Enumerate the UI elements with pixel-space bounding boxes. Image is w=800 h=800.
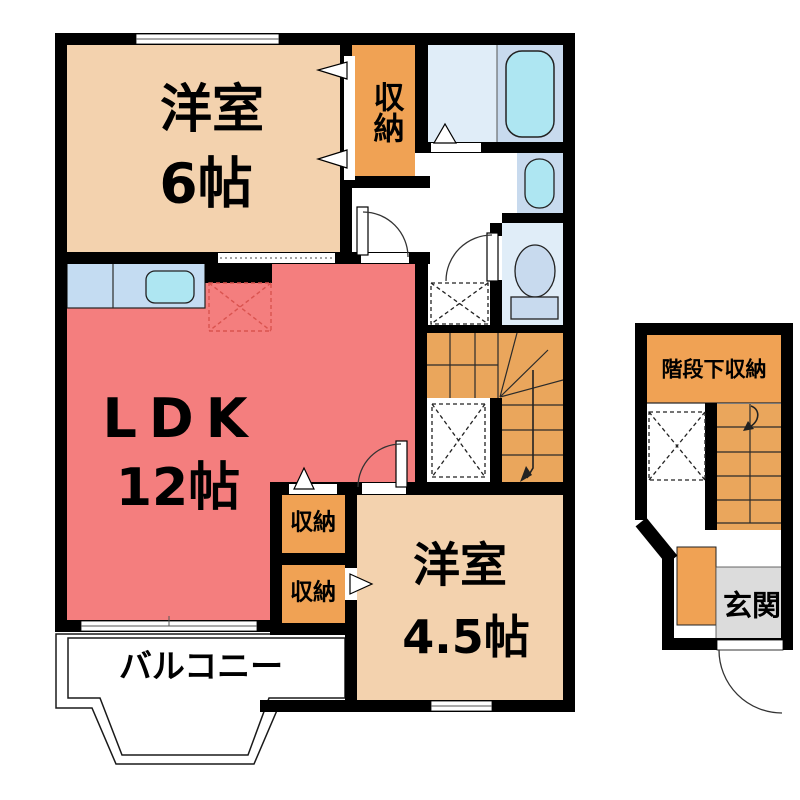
wall-segment [205, 264, 272, 283]
wall-segment [270, 623, 357, 635]
hall-ldk-door-leaf [357, 207, 368, 255]
wall-segment [781, 323, 793, 650]
toilet-door-swing-arc [446, 235, 492, 281]
wall-segment [55, 33, 67, 632]
toilet-door-leaf [487, 233, 498, 281]
wall-segment [260, 700, 575, 712]
label-entrance: 玄関 [723, 592, 781, 621]
label-western6-name: 洋室 [160, 84, 264, 136]
label-western45-name: 洋室 [413, 543, 507, 590]
entrance-door [717, 640, 783, 650]
washroom-door-opening [431, 143, 481, 152]
wall-segment [635, 323, 647, 520]
washroom-floor [428, 45, 497, 143]
wall-segment [415, 45, 428, 153]
toilet-bowl-icon [515, 245, 555, 297]
label-closet-b: 収納 [290, 582, 336, 605]
wall-segment [415, 264, 428, 333]
wall-segment [662, 552, 674, 650]
label-closet-a: 収納 [290, 512, 336, 535]
kitchen-sink-icon [146, 271, 194, 303]
wall-segment [55, 33, 575, 45]
floorplan-page: 洋室 6帖 収納 LDK 12帖 収納 収納 洋室 4.5帖 バルコニー 階段下… [0, 0, 800, 800]
label-closet-top: 収納 [370, 81, 401, 143]
wall-segment [415, 333, 427, 398]
hall-ldk-door-swing-arc [363, 212, 408, 257]
label-understairs-storage: 階段下収納 [662, 360, 767, 381]
label-western45-size: 4.5帖 [402, 614, 530, 660]
bathtub-icon [506, 51, 554, 137]
wall-segment [502, 213, 563, 223]
wall-segment [352, 176, 430, 188]
washbasin-icon [525, 159, 554, 208]
wall-segment [490, 398, 502, 482]
wall-segment [282, 553, 345, 565]
western6-floor [67, 45, 340, 252]
toilet-tank-icon [511, 297, 558, 319]
wall-segment [415, 325, 563, 333]
wall-segment [270, 495, 282, 635]
entrance-door-swing-arc [719, 650, 782, 713]
wall-segment [635, 323, 793, 335]
label-ldk-name: LDK [102, 392, 259, 446]
label-ldk-size: 12帖 [116, 462, 240, 514]
western45-door-leaf [396, 441, 407, 487]
shoe-cabinet [677, 547, 716, 625]
wall-segment [563, 33, 575, 712]
label-western6-size: 6帖 [159, 157, 252, 212]
wall-segment [705, 403, 717, 530]
western45-floor [357, 495, 563, 700]
label-balcony: バルコニー [119, 650, 283, 683]
wall-segment [415, 398, 427, 482]
